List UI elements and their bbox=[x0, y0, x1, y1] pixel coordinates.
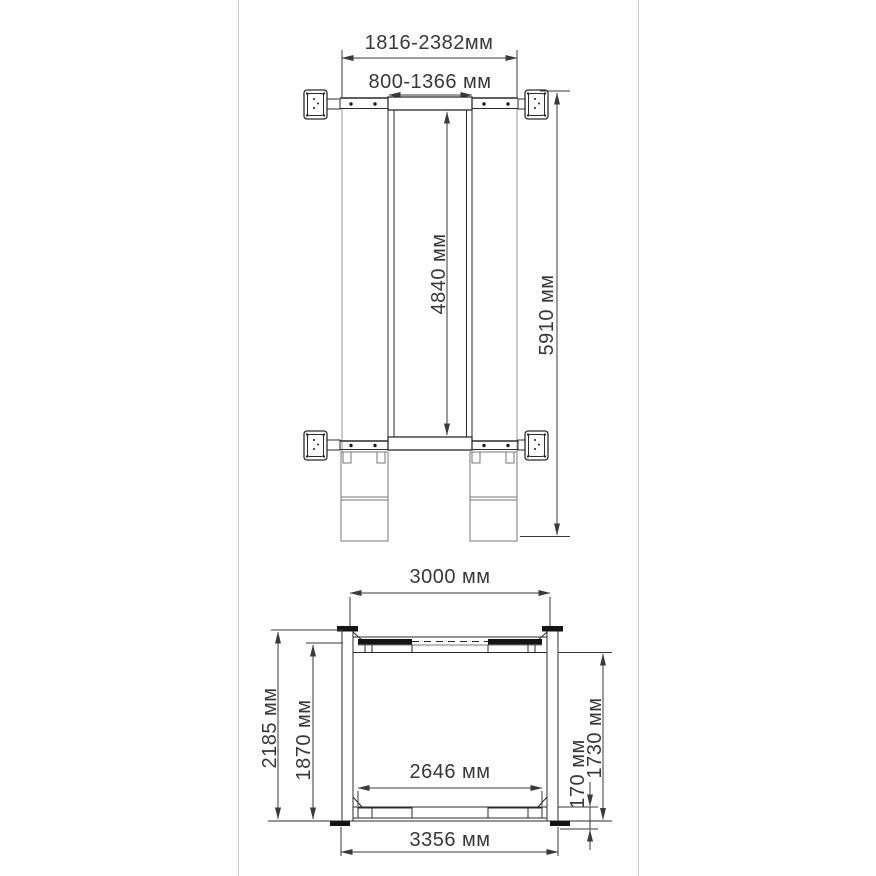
bracket-bottom-right bbox=[525, 431, 548, 460]
post-cap-left bbox=[337, 626, 358, 632]
base-plate-right bbox=[550, 821, 570, 826]
dim-label-posts-inner-width: 3000 мм bbox=[409, 566, 490, 588]
dim-label-platform-length: 4840 мм bbox=[428, 233, 450, 314]
dim-label-overall-height: 2185 мм bbox=[259, 687, 281, 768]
base-plate-left bbox=[330, 821, 350, 826]
beam-stub bbox=[327, 99, 340, 109]
tread-plate bbox=[488, 639, 542, 645]
pin-mark bbox=[313, 107, 315, 109]
dim-posts-inner-width: 3000 мм bbox=[350, 566, 550, 626]
bolt-hole bbox=[323, 433, 325, 435]
pin-mark bbox=[534, 448, 536, 450]
bolt-hole bbox=[544, 92, 546, 94]
post-right bbox=[547, 628, 558, 821]
dim-bottom-inner-width: 2646 мм bbox=[358, 761, 542, 806]
bracket-bottom-left bbox=[304, 431, 327, 460]
bracket-top-left bbox=[304, 90, 327, 119]
bracket-inner bbox=[308, 94, 324, 116]
pin-mark bbox=[534, 98, 536, 100]
tread-plate-outline bbox=[488, 808, 542, 818]
bolt-hole bbox=[544, 433, 546, 435]
bracket-inner bbox=[529, 94, 545, 116]
bracket-top-right bbox=[525, 90, 548, 119]
dim-label-bottom-inner-width: 2646 мм bbox=[409, 761, 490, 783]
bolt-hole bbox=[323, 455, 325, 457]
bolt-hole bbox=[306, 433, 308, 435]
bolt-hole bbox=[527, 433, 529, 435]
bolt-hole bbox=[306, 114, 308, 116]
dim-label-overall-width: 3356 мм bbox=[409, 829, 490, 851]
ramp-right bbox=[470, 452, 517, 541]
pin-mark bbox=[317, 444, 319, 446]
post-cap-right bbox=[542, 626, 563, 632]
bolt-hole bbox=[323, 114, 325, 116]
front-top-beam bbox=[353, 632, 547, 653]
pin-mark bbox=[313, 448, 315, 450]
pin-mark bbox=[534, 439, 536, 441]
bolt-hole bbox=[506, 102, 509, 105]
bolt-hole bbox=[527, 455, 529, 457]
bolt-hole bbox=[527, 114, 529, 116]
pin-mark bbox=[317, 103, 319, 105]
bolt-hole bbox=[482, 444, 485, 447]
dim-platform-length: 4840 мм bbox=[428, 112, 450, 435]
bolt-hole bbox=[506, 444, 509, 447]
bolt-hole bbox=[373, 102, 376, 105]
bolt-hole bbox=[349, 102, 352, 105]
bolt-hole bbox=[306, 92, 308, 94]
dim-overall-width: 3356 мм bbox=[341, 827, 558, 856]
platform-top-bar bbox=[388, 97, 472, 110]
bracket-inner bbox=[529, 435, 545, 457]
drawing-canvas: 1816-2382мм 800-1366 мм bbox=[0, 0, 876, 876]
bolt-hole bbox=[349, 444, 352, 447]
bolt-hole bbox=[306, 455, 308, 457]
dim-inner-width: 800-1366 мм bbox=[368, 71, 491, 95]
bracket-inner bbox=[308, 435, 324, 457]
platform-bottom-bar bbox=[388, 437, 472, 450]
tread-plate bbox=[358, 639, 412, 645]
pin-mark bbox=[538, 103, 540, 105]
dim-overall-length: 5910 мм bbox=[520, 91, 570, 537]
dim-label-overall-length: 5910 мм bbox=[536, 274, 558, 355]
bolt-hole bbox=[544, 455, 546, 457]
tread-plate-outline bbox=[358, 808, 412, 818]
bolt-hole bbox=[544, 114, 546, 116]
pin-mark bbox=[534, 107, 536, 109]
bolt-hole bbox=[482, 102, 485, 105]
beam-stub bbox=[327, 440, 340, 450]
ramp-left bbox=[341, 452, 388, 541]
dim-label-inner-width: 800-1366 мм bbox=[368, 71, 491, 93]
bolt-hole bbox=[323, 92, 325, 94]
dim-label-base-height: 170 мм bbox=[567, 739, 589, 808]
front-bottom-frame bbox=[353, 797, 547, 818]
dim-label-height-under-cap: 1870 мм bbox=[293, 699, 315, 780]
lift-dimensional-drawing: 1816-2382мм 800-1366 мм bbox=[0, 0, 876, 876]
dim-label-outer-width: 1816-2382мм bbox=[365, 32, 494, 54]
bolt-hole bbox=[527, 92, 529, 94]
post-left bbox=[342, 628, 353, 821]
pin-mark bbox=[313, 439, 315, 441]
pin-mark bbox=[538, 444, 540, 446]
front-view: 3000 мм bbox=[259, 566, 612, 856]
dim-height-under-cap: 1870 мм bbox=[293, 643, 343, 819]
bolt-hole bbox=[373, 444, 376, 447]
top-view: 1816-2382мм 800-1366 мм bbox=[304, 32, 570, 541]
pin-mark bbox=[313, 98, 315, 100]
